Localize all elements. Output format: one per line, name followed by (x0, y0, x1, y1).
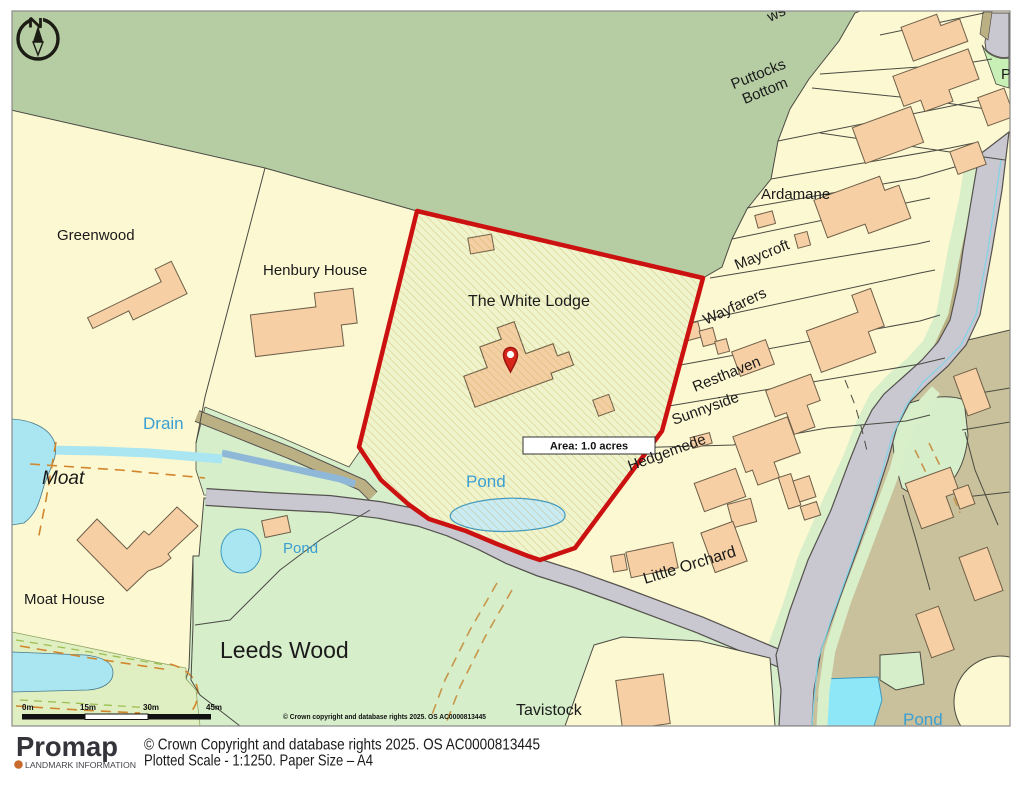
svg-text:Ardamane: Ardamane (761, 186, 830, 203)
svg-text:Promap: Promap (16, 731, 118, 762)
svg-text:© Crown Copyright and database: © Crown Copyright and database rights 20… (144, 737, 540, 754)
svg-text:Area: 1.0 acres: Area: 1.0 acres (550, 441, 628, 453)
svg-text:Moat House: Moat House (24, 591, 105, 608)
svg-text:Moat: Moat (42, 468, 85, 489)
svg-text:Tavistock: Tavistock (516, 702, 583, 719)
svg-text:Plotted Scale - 1:1250. Paper: Plotted Scale - 1:1250. Paper Size – A4 (144, 753, 373, 770)
svg-text:© Crown copyright and database: © Crown copyright and database rights 20… (283, 712, 486, 721)
svg-text:Pond: Pond (283, 540, 318, 557)
svg-text:15m: 15m (80, 703, 96, 712)
svg-text:0m: 0m (22, 703, 34, 712)
svg-text:The White Lodge: The White Lodge (468, 293, 590, 310)
svg-text:45m: 45m (206, 703, 222, 712)
svg-text:30m: 30m (143, 703, 159, 712)
svg-text:Henbury House: Henbury House (263, 262, 367, 279)
svg-text:Greenwood: Greenwood (57, 227, 135, 244)
svg-text:Drain: Drain (143, 414, 184, 433)
svg-text:Pond: Pond (466, 472, 506, 491)
svg-text:LANDMARK INFORMATION: LANDMARK INFORMATION (25, 760, 136, 770)
svg-text:Leeds Wood: Leeds Wood (220, 637, 349, 663)
